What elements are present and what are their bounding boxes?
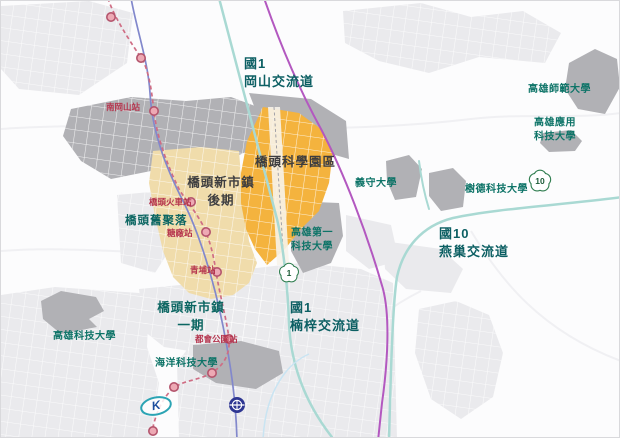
tra-logo-icon — [229, 397, 245, 413]
freeway-1-shield-number: 1 — [287, 268, 292, 278]
qiaotou-new-town-map: 國1 岡山交流道 南岡山站 橋頭科學園區 橋頭新市鎮 後期 橋頭舊聚落 橋頭火車… — [0, 0, 620, 438]
station-dot — [137, 54, 145, 62]
station-dot — [208, 369, 216, 377]
station-dot — [107, 13, 115, 21]
station-dot — [202, 228, 210, 236]
station-dot — [187, 198, 195, 206]
station-dot — [213, 268, 221, 276]
map-canvas — [1, 1, 620, 438]
freeway-10-shield-number: 10 — [535, 176, 544, 186]
station-dot — [225, 335, 233, 343]
station-dot — [170, 383, 178, 391]
station-dot — [150, 107, 158, 115]
station-dot — [149, 427, 157, 435]
